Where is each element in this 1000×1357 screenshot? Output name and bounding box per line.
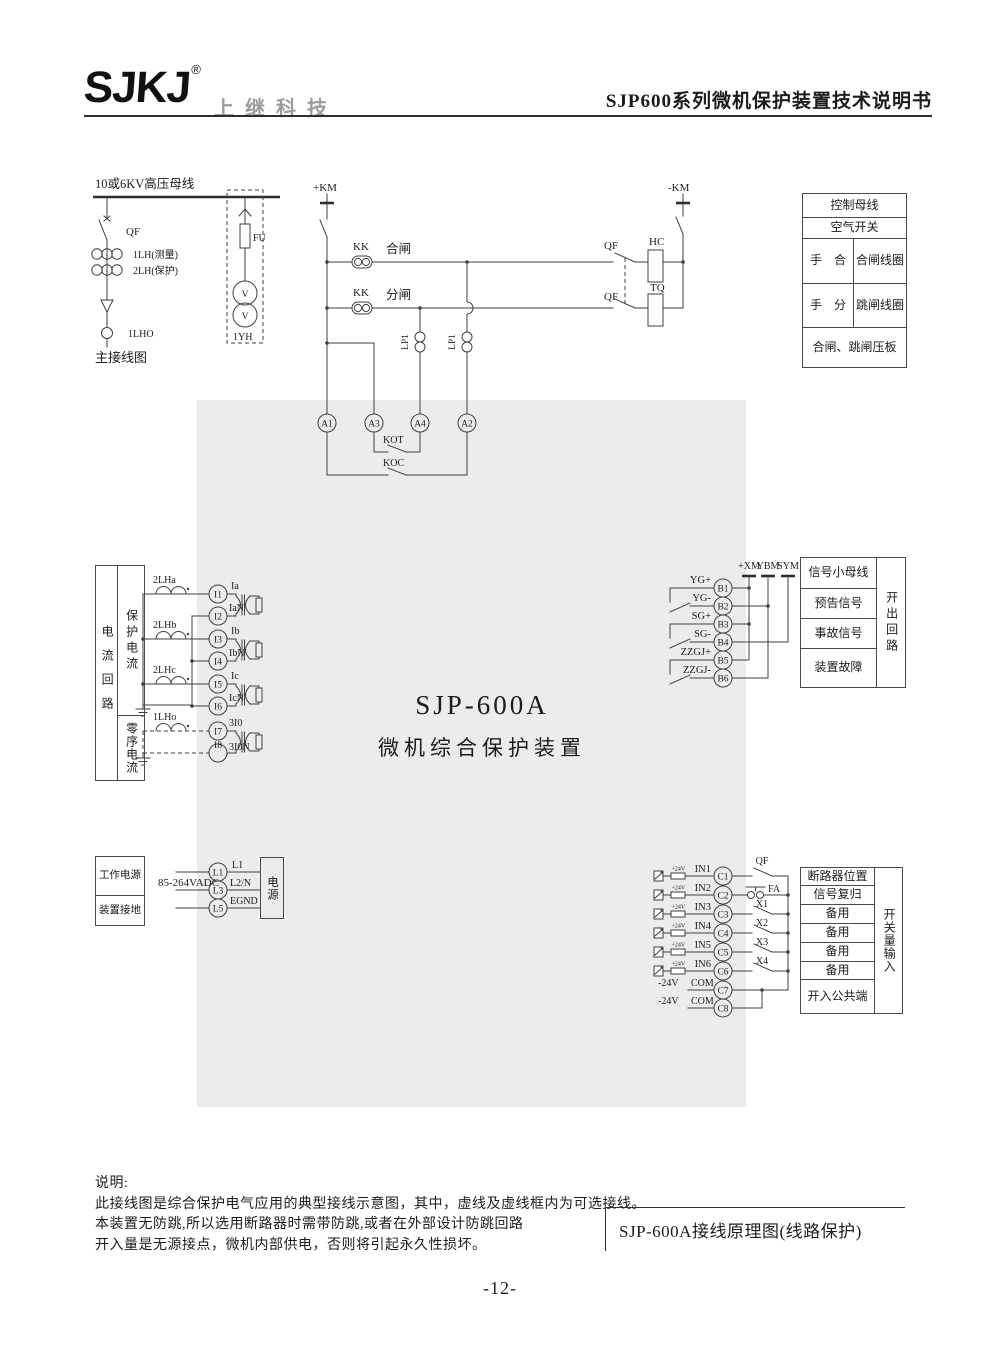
input-row-in2: +24V IN2 C2 — [654, 883, 732, 904]
table-cell: 备用 — [801, 924, 875, 943]
svg-text:B4: B4 — [717, 639, 728, 649]
main-single-line-diagram: 10或6KV高压母线 QF 1LH(测量) 2LH(保护) 1LHO 主接线图 … — [92, 176, 280, 365]
svg-text:B6: B6 — [717, 675, 728, 685]
table-cell: 装置接地 — [96, 896, 144, 925]
terminal-l5: L5 — [209, 899, 227, 917]
trip-coil-label: TQ — [650, 282, 665, 294]
page-number: -12- — [0, 1278, 1000, 1299]
terminal-a2: A2 — [458, 414, 476, 432]
ct-2lha-label: 2LHa — [153, 575, 176, 586]
terminal-a4: A4 — [411, 414, 429, 432]
table-cell: 控制母线 — [803, 194, 906, 218]
lp1-plate-label: LP1 — [448, 334, 458, 350]
svg-text:I5: I5 — [214, 681, 222, 691]
ia-signal-label: Ia — [231, 581, 239, 592]
yg-minus-label: YG- — [692, 593, 711, 604]
zero-seq-current-label: 零序电流 — [124, 722, 137, 774]
svg-text:L5: L5 — [213, 905, 224, 915]
notes-line: 此接线图是综合保护电气应用的典型接线示意图，其中，虚线及虚线框内为可选接线。 — [95, 1195, 675, 1216]
table-cell: 保护电流 — [118, 566, 144, 716]
koc-contact-label: KOC — [383, 458, 404, 469]
input-row-in5: +24V IN5 C5 — [654, 940, 732, 961]
km-plus-label: +KM — [313, 182, 337, 194]
plus24v-label: +24V — [672, 886, 686, 892]
svg-text:C7: C7 — [717, 987, 728, 997]
3i0-signal-label: 3I0 — [229, 718, 242, 729]
table-cell: 装置故障 — [801, 649, 877, 687]
svg-text:C2: C2 — [717, 892, 728, 902]
terminal-i3: I3 — [209, 630, 227, 648]
notes-line: 开入量是无源接点，微机内部供电，否则将引起永久性损坏。 — [95, 1236, 675, 1257]
table-cell: 零序电流 — [118, 716, 144, 780]
terminal-a1: A1 — [318, 414, 336, 432]
zzgj-minus-label: ZZGJ- — [683, 665, 711, 676]
table-cell: 合闸线圈 — [854, 239, 906, 284]
vt-name-label: 1YH — [233, 332, 252, 343]
in2-label: IN2 — [695, 883, 711, 894]
sg-minus-label: SG- — [694, 629, 711, 640]
terminal-i4: I4 — [209, 652, 227, 670]
terminal-i2: I2 — [209, 607, 227, 625]
table-cell: 电流回路 — [96, 566, 118, 780]
svg-text:C8: C8 — [717, 1005, 728, 1015]
table-cell: 开入公共端 — [801, 980, 875, 1013]
power-legend-table: 工作电源 装置接地 — [95, 856, 145, 926]
x2-contact-label: X2 — [756, 918, 768, 929]
binary-input-circuit: +24V IN1 C1 +24V IN2 C2 +24V IN3 C3 — [654, 856, 790, 1017]
svg-text:A2: A2 — [461, 420, 473, 430]
hv-bus-label: 10或6KV高压母线 — [95, 176, 195, 191]
svg-text:I7: I7 — [214, 728, 222, 738]
ct-2lhb-label: 2LHb — [153, 620, 176, 631]
minus24v-label: -24V — [658, 978, 679, 989]
x3-contact-label: X3 — [756, 937, 768, 948]
table-cell: 手 合 — [803, 239, 854, 284]
l1-signal-label: L1 — [232, 860, 243, 871]
plus24v-label: +24V — [672, 905, 686, 911]
table-cell: 预告信号 — [801, 589, 877, 619]
svg-text:I2: I2 — [214, 613, 222, 623]
in6-label: IN6 — [695, 959, 711, 970]
svg-text:L3: L3 — [213, 887, 224, 897]
table-cell: 手 分 — [803, 284, 854, 328]
signal-output-circuit: YG+ YG- SG+ SG- ZZGJ+ ZZGJ- B1 B2 B3 B4 … — [670, 561, 799, 687]
svg-text:B3: B3 — [717, 621, 728, 631]
com-label: COM — [691, 978, 714, 989]
breaker-qf-label: QF — [126, 226, 140, 238]
ybm-bus-label: YBM — [757, 561, 780, 572]
svg-text:I3: I3 — [214, 636, 222, 646]
minus24v-label: -24V — [658, 996, 679, 1007]
in4-label: IN4 — [695, 921, 712, 932]
in5-label: IN5 — [695, 940, 711, 951]
plus24v-label: +24V — [672, 943, 686, 949]
l2n-signal-label: L2/N — [230, 878, 251, 889]
kk-switch-label: KK — [353, 287, 369, 299]
power-supply-label: 电源 — [264, 876, 280, 901]
vt-v-label: V — [242, 290, 249, 300]
ct-1lho-label: 1LHo — [153, 712, 176, 723]
qf-aux-contact-label: QF — [604, 240, 618, 252]
table-cell: 事故信号 — [801, 619, 877, 649]
terminal-b4: B4 — [714, 633, 732, 651]
output-loop-label: 开出回路 — [884, 591, 897, 655]
drawing-caption: SJP-600A接线原理图(线路保护) — [619, 1222, 862, 1241]
ct-2lhc-label: 2LHc — [153, 665, 176, 676]
open-label: 分闸 — [386, 288, 411, 302]
signal-legend-table: 信号小母线 预告信号 事故信号 装置故障 开出回路 — [800, 557, 906, 688]
input-row-in3: +24V IN3 C3 — [654, 902, 732, 923]
svg-text:C1: C1 — [717, 873, 728, 883]
input-row-in1: +24V IN1 C1 — [654, 864, 732, 885]
plus24v-label: +24V — [672, 867, 686, 873]
table-cell: 工作电源 — [96, 857, 144, 896]
device-model: SJP-600A — [372, 690, 592, 721]
qf-position-contact-label: QF — [756, 856, 769, 867]
egnd-signal-label: EGND — [230, 896, 258, 907]
current-input-circuit: 2LHa 2LHb 2LHc 1LHo I1 — [136, 575, 262, 765]
zero-ct-label: 1LHO — [128, 329, 154, 340]
drawing-caption-box: SJP-600A接线原理图(线路保护) — [605, 1207, 905, 1251]
kot-contact-label: KOT — [383, 435, 404, 446]
table-cell: 跳闸线圈 — [854, 284, 906, 328]
terminal-i7: I7 — [209, 722, 227, 740]
power-supply-box: 电源 — [260, 857, 284, 919]
svg-text:A1: A1 — [321, 420, 333, 430]
x4-contact-label: X4 — [756, 956, 768, 967]
plus24v-label: +24V — [672, 962, 686, 968]
table-cell: 合闸、跳闸压板 — [803, 328, 906, 367]
fa-reset-button-label: FA — [768, 884, 781, 895]
input-row-in6: +24V IN6 C6 — [654, 959, 732, 980]
in3-label: IN3 — [695, 902, 711, 913]
zzgj-plus-label: ZZGJ+ — [681, 647, 711, 658]
terminal-l1: L1 — [209, 863, 227, 881]
table-cell: 断路器位置 — [801, 868, 875, 886]
terminal-i8: I8 — [209, 741, 227, 762]
lp1-plate-label: LP1 — [401, 334, 411, 350]
notes-block: 说明: 此接线图是综合保护电气应用的典型接线示意图，其中，虚线及虚线框内为可选接… — [95, 1174, 675, 1256]
close-label: 合闸 — [386, 241, 411, 256]
sg-plus-label: SG+ — [692, 611, 711, 622]
terminal-b3: B3 — [714, 615, 732, 633]
vt-v-label: V — [242, 312, 249, 322]
svg-text:A3: A3 — [368, 420, 380, 430]
plus24v-label: +24V — [672, 924, 686, 930]
terminal-i6: I6 — [209, 697, 227, 715]
svg-text:I4: I4 — [214, 658, 222, 668]
svg-text:C5: C5 — [717, 949, 728, 959]
com-label: COM — [691, 996, 714, 1007]
device-title: SJP-600A 微机综合保护装置 — [372, 690, 592, 762]
table-cell: 开关量输入 — [875, 868, 902, 1013]
svg-text:I6: I6 — [214, 703, 222, 713]
input-legend-table: 断路器位置 信号复归 备用 备用 备用 备用 开入公共端 开关量输入 — [800, 867, 903, 1014]
terminal-i1: I1 — [209, 585, 227, 603]
terminal-i5: I5 — [209, 675, 227, 693]
manual-page: SJKJ® 上继科技 SJP600系列微机保护装置技术说明书 10或6KV高压母… — [0, 0, 1000, 1357]
terminal-b5: B5 — [714, 651, 732, 669]
ic-signal-label: Ic — [231, 671, 239, 682]
table-cell: 备用 — [801, 943, 875, 962]
qf-aux-contact-label: QF — [604, 291, 618, 303]
power-circuit: 85-264VADC L1 L3 L5 L1 L2/N EGND — [158, 860, 260, 917]
svg-text:C3: C3 — [717, 911, 728, 921]
close-coil-label: HC — [649, 236, 664, 248]
terminal-b6: B6 — [714, 669, 732, 687]
notes-line: 本装置无防跳,所以选用断路器时需带防跳,或者在外部设计防跳回路 — [95, 1215, 675, 1236]
table-cell: 开出回路 — [877, 558, 905, 687]
control-circuit: +KM -KM KK 合闸 QF HC — [313, 182, 690, 475]
km-minus-label: -KM — [668, 182, 690, 194]
table-cell: 信号小母线 — [801, 558, 877, 589]
in1-label: IN1 — [695, 864, 711, 875]
table-cell: 空气开关 — [803, 218, 906, 239]
svg-text:C6: C6 — [717, 968, 728, 978]
ib-signal-label: Ib — [231, 626, 239, 637]
current-loop-label: 电流回路 — [100, 625, 113, 721]
terminal-b2: B2 — [714, 597, 732, 615]
notes-title: 说明: — [95, 1174, 675, 1195]
binary-input-label: 开关量输入 — [882, 908, 895, 973]
table-cell: 备用 — [801, 962, 875, 980]
ct-measure-label: 1LH(测量) — [133, 248, 178, 261]
terminal-b1: B1 — [714, 579, 732, 597]
protect-current-label: 保护电流 — [124, 609, 137, 673]
svg-text:B5: B5 — [717, 657, 728, 667]
table-cell: 备用 — [801, 905, 875, 924]
kk-switch-label: KK — [353, 241, 369, 253]
device-name: 微机综合保护装置 — [372, 732, 592, 762]
svg-text:I1: I1 — [214, 591, 222, 601]
table-cell: 信号复归 — [801, 886, 875, 905]
svg-text:B1: B1 — [717, 585, 728, 595]
svg-text:L1: L1 — [213, 869, 224, 879]
svg-text:A4: A4 — [414, 420, 426, 430]
svg-text:I8: I8 — [214, 741, 222, 751]
input-row-in4: +24V IN4 C4 — [654, 921, 732, 942]
fuse-label: FU — [253, 233, 267, 244]
ct-protect-label: 2LH(保护) — [133, 264, 178, 277]
yg-plus-label: YG+ — [690, 575, 711, 586]
svg-text:C4: C4 — [717, 930, 728, 940]
terminal-a3: A3 — [365, 414, 383, 432]
sym-bus-label: SYM — [777, 561, 799, 572]
x1-contact-label: X1 — [756, 899, 768, 910]
svg-text:B2: B2 — [717, 603, 728, 613]
main-diagram-caption: 主接线图 — [95, 350, 147, 365]
control-legend-table: 控制母线 空气开关 手 合 合闸线圈 手 分 跳闸线圈 合闸、跳闸压板 — [802, 193, 907, 368]
current-legend-table: 电流回路 保护电流 零序电流 — [95, 565, 145, 781]
